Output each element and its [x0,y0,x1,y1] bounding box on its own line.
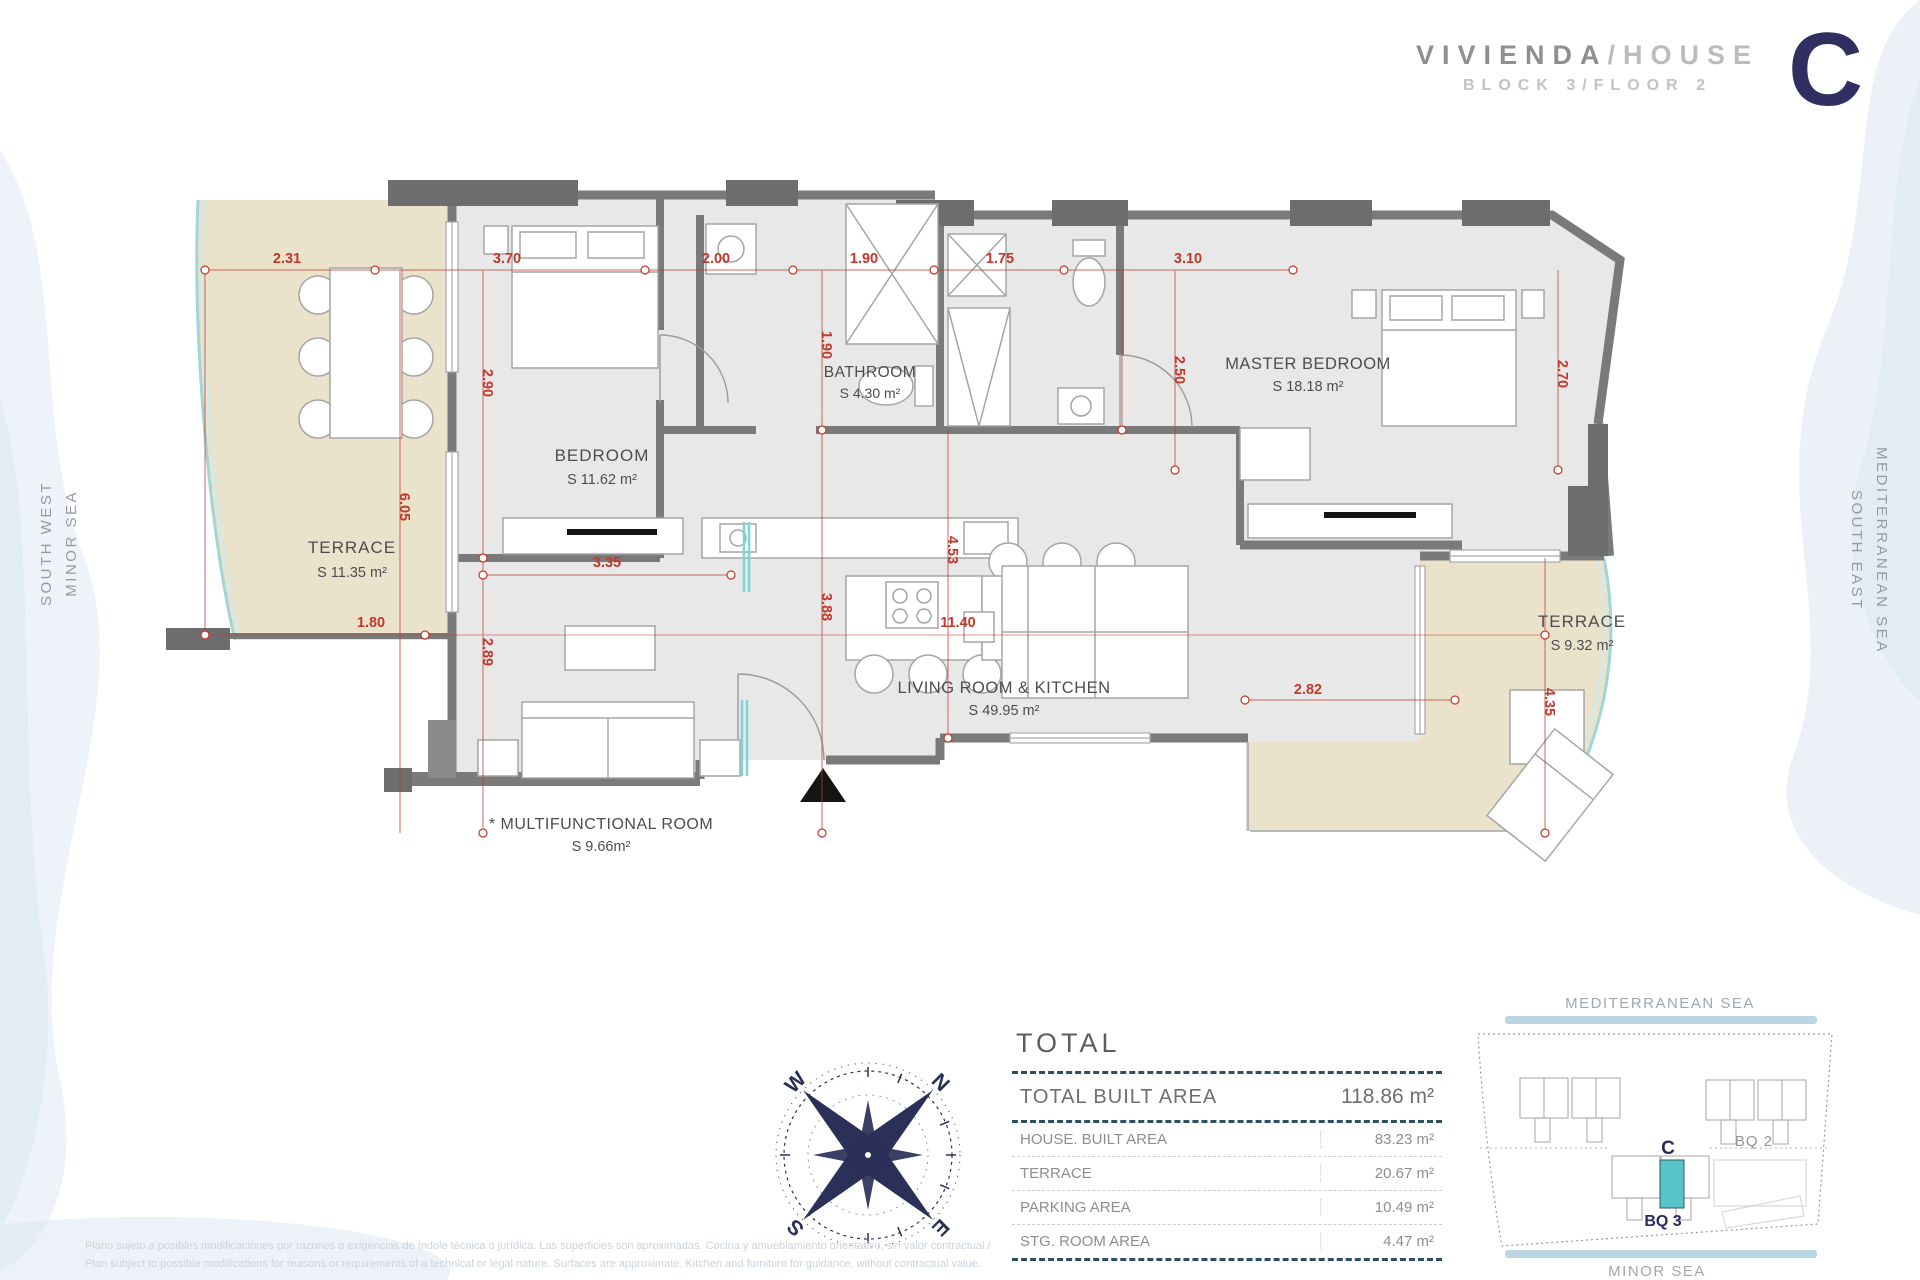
storage-area-value: 4.47 m² [1320,1233,1438,1250]
room-terrace-left-area: S 11.35 m² [317,565,387,581]
room-terrace-left-name: TERRACE [308,538,396,557]
room-bathroom-area: S 4.30 m² [840,385,901,401]
dim-3-35: 3.35 [593,555,621,571]
floorplan-page: 2.31 3.70 2.00 1.90 1.75 3.10 2.90 1.90 … [0,0,1920,1280]
dim-1-90-bath: 1.90 [818,331,834,359]
table-row: PARKING AREA 10.49 m² [1012,1191,1442,1225]
disclaimer-line-spanish: Plano sujeto a posibles modificaciones p… [85,1238,1235,1256]
entrance-arrow [800,768,846,802]
dim-1-75: 1.75 [986,251,1014,267]
room-bathroom-name: BATHROOM [824,364,916,381]
dim-2-50: 2.50 [1171,356,1187,384]
table-row: HOUSE. BUILT AREA 83.23 m² [1012,1123,1442,1157]
room-bedroom-name: BEDROOM [555,446,650,465]
parking-area-label: PARKING AREA [1020,1199,1320,1216]
room-living-name: LIVING ROOM & KITCHEN [897,679,1110,697]
total-built-area-value: 118.86 m² [1341,1085,1434,1109]
house-title: VIVIENDA/HOUSE [1400,40,1775,71]
house-built-area-label: HOUSE. BUILT AREA [1020,1131,1320,1148]
site-map-unit-label: C [1661,1138,1675,1159]
title-separator: / [1607,40,1623,70]
room-terrace-right-name: TERRACE [1538,612,1626,631]
highlighted-unit [1660,1160,1684,1208]
unit-letter: C [1788,18,1863,122]
page-header: VIVIENDA/HOUSE BLOCK 3/FLOOR 2 [1400,40,1775,95]
orientation-southeast: SOUTH EAST [1848,490,1865,611]
room-multifunctional-area: S 9.66m² [572,839,631,855]
orientation-minor-sea: MINOR SEA [63,490,80,597]
site-map-sea-top-label: MEDITERRANEAN SEA [1565,995,1755,1012]
dim-2-89: 2.89 [479,638,495,666]
dim-3-70: 3.70 [493,251,521,267]
plan-canvas: 2.31 3.70 2.00 1.90 1.75 3.10 2.90 1.90 … [0,0,1920,1280]
dim-1-90-top: 1.90 [850,251,878,267]
dim-2-00: 2.00 [702,251,730,267]
terrace-area-value: 20.67 m² [1320,1165,1438,1182]
site-map-bq2-label: BQ 2 [1735,1133,1773,1150]
block-floor-subtitle: BLOCK 3/FLOOR 2 [1400,77,1775,95]
site-map: MEDITERRANEAN SEA BQ 2 C BQ 3 MINOR SEA [1478,995,1832,1280]
room-master-bedroom-name: MASTER BEDROOM [1225,355,1391,373]
dim-6-05: 6.05 [396,493,412,521]
room-bedroom-area: S 11.62 m² [567,472,637,488]
sea-bar-bottom [1505,1250,1817,1258]
site-map-sea-bottom-label: MINOR SEA [1608,1263,1706,1280]
dim-3-88: 3.88 [818,593,834,621]
dim-4-35: 4.35 [1541,688,1557,716]
total-built-area-label: TOTAL BUILT AREA [1020,1086,1217,1109]
dim-11-40: 11.40 [940,615,976,631]
room-terrace-right-area: S 9.32 m² [1551,638,1614,654]
dim-2-90: 2.90 [479,369,495,397]
disclaimer-line-english: Plan subject to possible modifications f… [85,1256,1235,1274]
dim-4-53: 4.53 [944,536,960,564]
site-map-bq3-label: BQ 3 [1644,1213,1681,1230]
room-multifunctional-name: * MULTIFUNCTIONAL ROOM [489,816,713,833]
parking-area-value: 10.49 m² [1320,1199,1438,1216]
dim-1-80: 1.80 [357,615,385,631]
orientation-label-right: SOUTH EAST MEDITERRANEAN SEA [1848,420,1890,680]
orientation-southwest: SOUTH WEST [38,481,55,606]
room-living-area: S 49.95 m² [969,703,1040,719]
room-master-bedroom-area: S 18.18 m² [1273,379,1344,395]
dim-2-82: 2.82 [1294,682,1322,698]
table-row: TOTAL BUILT AREA 118.86 m² [1012,1071,1442,1123]
table-row: TERRACE 20.67 m² [1012,1157,1442,1191]
terrace-area-label: TERRACE [1020,1165,1320,1182]
dim-3-10: 3.10 [1174,251,1202,267]
house-built-area-value: 83.23 m² [1320,1131,1438,1148]
orientation-label-left: SOUTH WEST MINOR SEA [38,428,80,658]
total-areas-table: TOTAL TOTAL BUILT AREA 118.86 m² HOUSE. … [1012,1028,1442,1261]
total-title: TOTAL [1016,1028,1442,1059]
legal-disclaimer: Plano sujeto a posibles modificaciones p… [85,1238,1235,1273]
sea-bar-top [1505,1016,1817,1024]
title-vivienda: VIVIENDA [1416,40,1608,70]
floor-plan: 2.31 3.70 2.00 1.90 1.75 3.10 2.90 1.90 … [166,180,1626,861]
dim-2-31: 2.31 [273,251,301,267]
orientation-mediterranean-sea: MEDITERRANEAN SEA [1873,447,1890,654]
dim-2-70: 2.70 [1554,360,1570,388]
title-house: HOUSE [1623,40,1759,70]
